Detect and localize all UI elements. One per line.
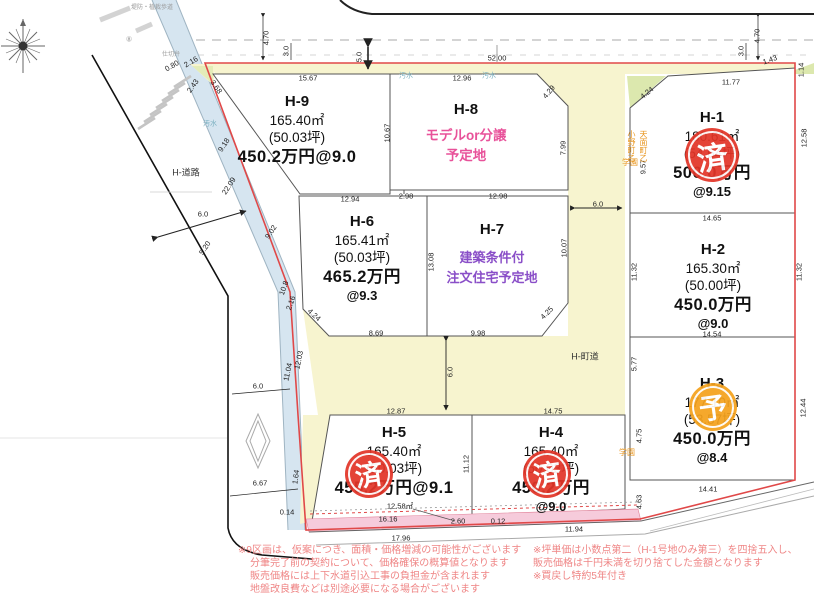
lot-id: H-9 [238, 92, 357, 112]
lot-h3: H-3 177.10㎡ (53.57坪) 450.0万円 @8.4 [673, 374, 751, 467]
lot-h8: H-8 モデルor分譲 予定地 [426, 100, 507, 166]
lot-id: H-4 [512, 423, 590, 443]
note-line: 地盤改良費などは別途必要になる場合がございます [238, 583, 521, 596]
note-line: ※坪単価は小数点第二（H-1号地のみ第三）を四捨五入し、 [533, 544, 798, 557]
lot-id: H-1 [673, 108, 751, 128]
note-line: ※買戻し特約5年付き [533, 570, 798, 583]
lot-h2: H-2 165.30㎡ (50.00坪) 450.0万円 @9.0 [674, 240, 752, 333]
lot-price: 450.2万円 [512, 478, 590, 499]
lot-price: 450.0万円 [673, 429, 751, 450]
lot-area: 177.10㎡ [673, 394, 751, 412]
lot-h9: H-9 165.40㎡ (50.03坪) 450.2万円@9.0 [238, 92, 357, 168]
lot-note: モデルor分譲 [426, 126, 507, 146]
lot-id: H-8 [426, 100, 507, 120]
lot-tsubo: (53.57坪) [673, 411, 751, 429]
lot-price: 465.2万円 [323, 267, 401, 288]
lot-rate: @8.4 [673, 450, 751, 467]
lot-h5: H-5 165.40㎡ (50.03坪) 455.2万円@9.1 [335, 423, 454, 499]
lot-h6: H-6 165.41㎡ (50.03坪) 465.2万円 @9.3 [323, 212, 401, 305]
note-line: ※9区画は、仮案につき、面積・価格増減の可能性がございます [238, 544, 521, 557]
lot-rate: @9.0 [674, 316, 752, 333]
lot-id: H-2 [674, 240, 752, 260]
footnotes-left: ※9区画は、仮案につき、面積・価格増減の可能性がございます分筆完了前の契約につい… [238, 544, 521, 596]
lot-h7: H-7 建築条件付 注文住宅予定地 [446, 220, 537, 289]
lot-h1: H-1 180.61㎡ (54.64坪) 500.0万円 @9.15 [673, 108, 751, 201]
lot-tsubo: (50.03坪) [512, 460, 590, 478]
lot-tsubo: (50.03坪) [238, 129, 357, 147]
lot-price: 500.0万円 [673, 163, 751, 184]
lot-area: 165.41㎡ [323, 232, 401, 250]
lot-price: 450.2万円@9.0 [238, 147, 357, 168]
lot-h4: H-4 165.40㎡ (50.03坪) 450.2万円 @9.0 [512, 423, 590, 516]
lot-area: 165.40㎡ [512, 443, 590, 461]
lot-rate: @9.3 [323, 288, 401, 305]
lot-area: 165.30㎡ [674, 260, 752, 278]
diamond-road-marking [246, 414, 270, 468]
footnotes-right: ※坪単価は小数点第二（H-1号地のみ第三）を四捨五入し、販売価格は千円未満を切り… [533, 544, 798, 583]
lot-id: H-5 [335, 423, 454, 443]
land-subdivision-map: { "lots": [ {"id":"H-9","area":"165.40㎡"… [0, 0, 814, 600]
lot-id: H-6 [323, 212, 401, 232]
lot-note: 建築条件付 [446, 248, 537, 269]
lot-note: 予定地 [426, 146, 507, 166]
lot-price: 450.0万円 [674, 295, 752, 316]
lot-tsubo: (50.03坪) [323, 249, 401, 267]
lot-id: H-3 [673, 374, 751, 394]
lot-note: 注文住宅予定地 [446, 268, 537, 289]
lot-tsubo: (50.00坪) [674, 277, 752, 295]
note-line: 分筆完了前の契約について、価格確保の概算値となります [238, 557, 521, 570]
lot-tsubo: (50.03坪) [335, 460, 454, 478]
lot-area: 165.40㎡ [335, 443, 454, 461]
compass-icon [1, 19, 45, 73]
lot-area: 165.40㎡ [238, 112, 357, 130]
top-road-lines [196, 0, 814, 55]
lot-price: 455.2万円@9.1 [335, 478, 454, 499]
lot-tsubo: (54.64坪) [673, 145, 751, 163]
note-line: 販売価格は千円未満を切り捨てした金額となります [533, 557, 798, 570]
lot-rate: @9.15 [673, 184, 751, 201]
lot-area: 180.61㎡ [673, 128, 751, 146]
lot-id: H-7 [446, 220, 537, 240]
note-line: 販売価格には上下水道引込工事の負担金が含まれます [238, 570, 521, 583]
lot-rate: @9.0 [512, 499, 590, 516]
